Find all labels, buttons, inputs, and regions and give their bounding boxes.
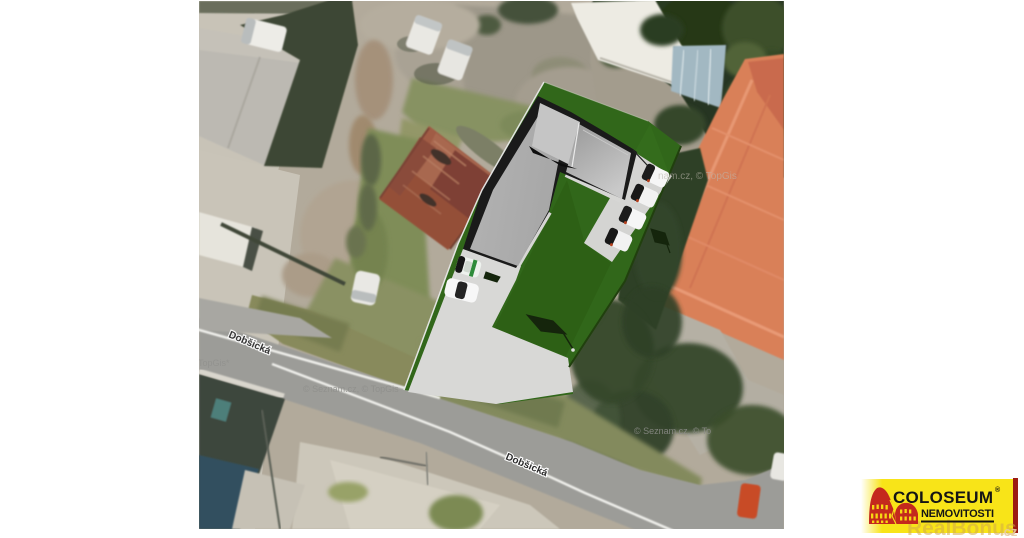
svg-text:© Seznam.cz, © TopGis: © Seznam.cz, © TopGis: [303, 384, 399, 394]
svg-text:.cz: .cz: [1000, 524, 1018, 538]
svg-text:© Seznam.cz, © To: © Seznam.cz, © To: [634, 426, 711, 436]
svg-text:TopGis*: TopGis*: [198, 358, 230, 368]
svg-text:COLOSEUM: COLOSEUM: [893, 488, 993, 507]
svg-text:NEMOVITOSTI: NEMOVITOSTI: [921, 508, 994, 520]
svg-text:nam.cz, © TopGis: nam.cz, © TopGis: [658, 171, 737, 182]
svg-text:®: ®: [995, 486, 1001, 494]
